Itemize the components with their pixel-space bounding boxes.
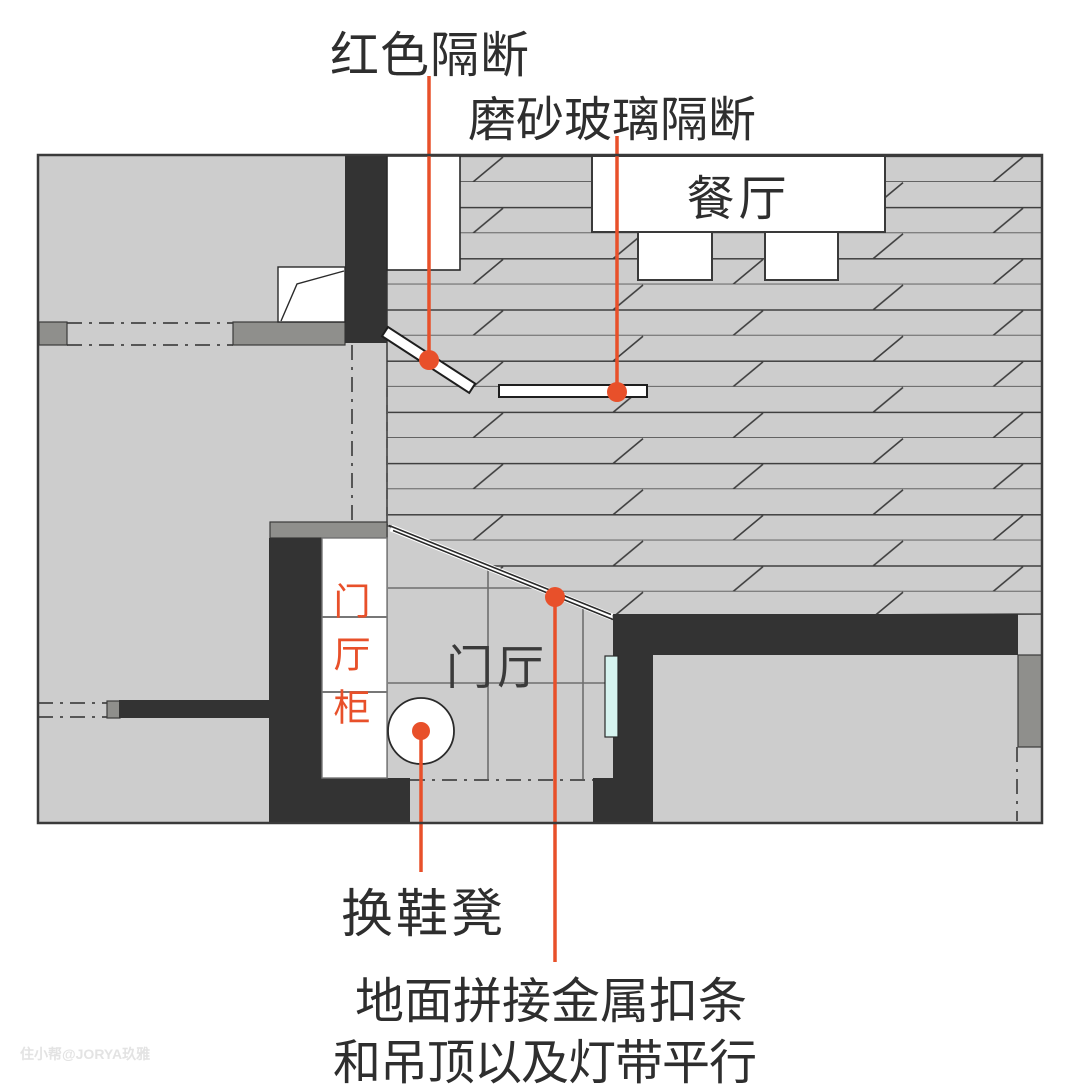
dining-chair-right xyxy=(765,232,838,280)
dot-shoe-stool xyxy=(412,722,430,740)
wall-foyer-bottom-left xyxy=(322,778,410,822)
wall-bottom-left-bar xyxy=(119,700,269,718)
label-shoe-stool: 换鞋凳 xyxy=(341,872,506,947)
wall-foyer-left xyxy=(269,538,322,822)
wall-foyer-bottom-right xyxy=(593,778,653,822)
top-opening-box xyxy=(387,156,460,270)
window-right xyxy=(1018,655,1042,747)
dining-chair-left xyxy=(638,232,712,280)
label-red-partition: 红色隔断 xyxy=(330,16,530,87)
wall-bottom-right-horizontal xyxy=(613,614,1018,655)
dot-red-partition xyxy=(419,350,439,370)
label-frosted-glass-partition: 磨砂玻璃隔断 xyxy=(468,80,756,150)
dot-metal-strip xyxy=(545,587,565,607)
wall-end-cap xyxy=(107,701,120,718)
floor-plan-drawing xyxy=(0,0,1080,1090)
room-label-foyer-cabinet: 门厅柜 xyxy=(330,582,367,741)
watermark: 住小帮@JORYA玖雅 xyxy=(20,1044,150,1064)
sill-foyer-top xyxy=(270,522,387,538)
wall-top-middle xyxy=(345,155,387,343)
entry-glass-panel xyxy=(605,656,618,737)
floorplan-page: 红色隔断 磨砂玻璃隔断 餐厅 门厅 门厅柜 换鞋凳 地面拼接金属扣条 和吊顶以及… xyxy=(0,0,1080,1090)
window-left xyxy=(39,322,67,345)
dot-frosted-glass xyxy=(607,382,627,402)
label-metal-strip-line2: 和吊顶以及灯带平行 xyxy=(333,1023,756,1090)
sill-top-left xyxy=(233,322,345,345)
door-swing xyxy=(278,267,345,322)
room-label-dining: 餐厅 xyxy=(592,156,885,232)
room-label-foyer: 门厅 xyxy=(446,629,548,698)
